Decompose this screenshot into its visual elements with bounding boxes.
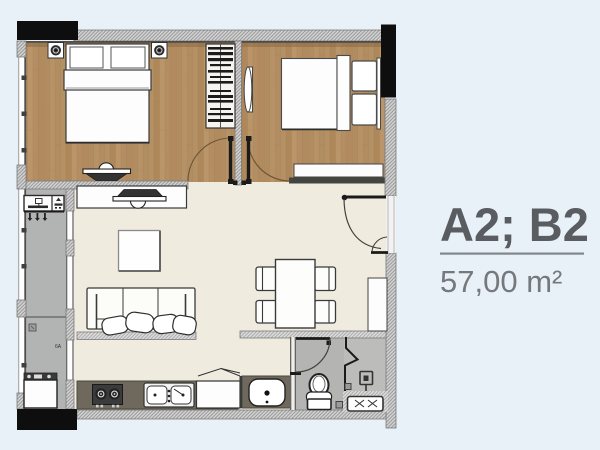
- svg-text:57,00 m²: 57,00 m²: [440, 264, 562, 299]
- svg-text:A2; B2: A2; B2: [440, 198, 589, 251]
- svg-text:6A: 6A: [55, 344, 62, 350]
